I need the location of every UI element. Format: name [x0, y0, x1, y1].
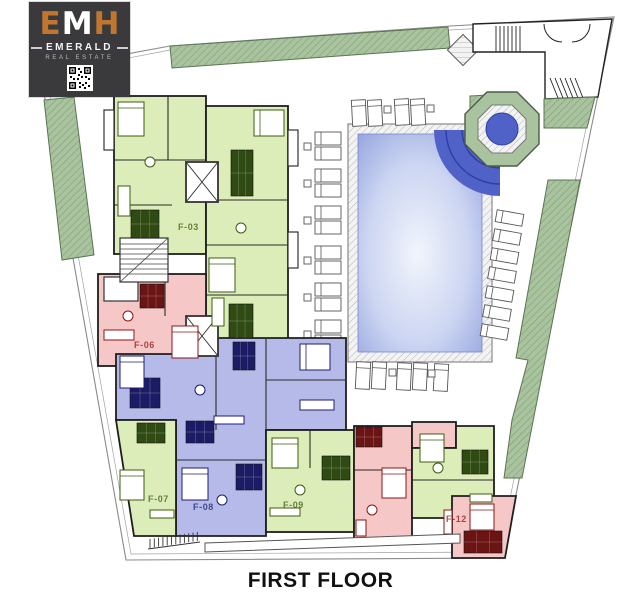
sun-lounger — [495, 210, 524, 227]
unit-label-f08: F-08 — [193, 502, 214, 512]
side-table — [384, 106, 391, 113]
side-table — [304, 180, 311, 187]
bed — [272, 438, 298, 468]
sofa — [212, 298, 224, 326]
sun-lounger — [315, 246, 341, 259]
rug — [137, 423, 165, 443]
floor-title: FIRST FLOOR — [0, 569, 641, 593]
unit-label-f07: F-07 — [148, 494, 169, 504]
staircase — [120, 238, 168, 282]
monogram-letter: M — [61, 6, 94, 42]
sun-lounger — [394, 99, 409, 126]
railing-base — [148, 542, 200, 549]
unit-label-f09: F-09 — [283, 500, 304, 510]
bed — [254, 110, 284, 136]
sun-lounger — [412, 363, 427, 391]
rug — [131, 210, 159, 238]
landscaping-left — [44, 97, 94, 260]
table — [195, 385, 205, 395]
bed — [172, 326, 198, 358]
rug — [464, 531, 502, 553]
sun-lounger — [355, 362, 370, 390]
table — [217, 495, 227, 505]
sun-lounger — [371, 362, 386, 390]
sun-lounger — [315, 283, 341, 296]
sun-lounger — [351, 100, 366, 127]
side-table — [427, 105, 434, 112]
unit-label-f06: F-06 — [134, 340, 155, 350]
side-table — [304, 143, 311, 150]
unit-label-f12: F-12 — [446, 514, 467, 524]
brand-subtitle: REAL ESTATE — [45, 55, 113, 61]
rug — [233, 342, 255, 370]
rug — [322, 456, 350, 480]
spa-bowl — [486, 113, 518, 145]
sun-lounger — [490, 248, 519, 265]
side-table — [304, 331, 311, 338]
sun-lounger — [315, 298, 341, 311]
brand-name: EMERALD — [46, 42, 113, 53]
rug — [462, 450, 488, 474]
sofa — [214, 416, 244, 424]
rug — [236, 464, 262, 490]
table — [145, 157, 155, 167]
sun-lounger — [367, 100, 382, 127]
sofa — [356, 520, 366, 536]
unit-label-f03: F-03 — [178, 222, 199, 232]
side-table — [304, 294, 311, 301]
bed — [420, 434, 444, 462]
divider — [117, 47, 128, 49]
sun-lounger — [315, 261, 341, 274]
landscaping-top — [170, 27, 450, 68]
rug — [231, 150, 253, 196]
sun-lounger — [315, 169, 341, 182]
rug — [229, 304, 253, 338]
swimming-pool — [348, 92, 539, 362]
sun-lounger — [315, 184, 341, 197]
sun-lounger — [410, 99, 425, 126]
bed — [470, 504, 494, 530]
brand-name-row: EMERALD — [31, 42, 128, 53]
sofa — [300, 400, 334, 410]
sofa — [150, 510, 174, 518]
table — [295, 485, 305, 495]
divider — [31, 47, 42, 49]
bed — [382, 468, 406, 498]
bed — [120, 470, 144, 500]
side-table — [428, 370, 435, 377]
entrance-stairs — [496, 26, 520, 52]
sun-lounger — [315, 132, 341, 145]
elevator-shaft-1 — [186, 162, 218, 202]
brand-logo: EMH EMERALD REAL ESTATE — [29, 2, 130, 97]
sun-lounger — [433, 364, 448, 392]
landscaping-patch — [544, 97, 595, 128]
rug — [186, 421, 214, 443]
table — [367, 505, 377, 515]
side-table — [304, 257, 311, 264]
sun-lounger — [493, 229, 522, 246]
bed — [118, 102, 144, 136]
sofa — [118, 186, 130, 216]
bed — [182, 468, 208, 500]
qr-code-icon — [67, 65, 93, 91]
rug — [140, 284, 164, 308]
bed — [300, 344, 330, 370]
monogram-letter: E — [40, 6, 61, 42]
side-table — [304, 217, 311, 224]
bed — [209, 258, 235, 292]
sun-lounger — [396, 363, 411, 391]
sofa — [470, 494, 492, 502]
side-table — [389, 369, 396, 376]
sun-lounger — [315, 206, 341, 219]
sun-lounger — [315, 320, 341, 333]
brand-monogram: EMH — [40, 9, 120, 39]
sofa — [104, 330, 134, 340]
floor-plan-page: EMH EMERALD REAL ESTATE F-03 F-06 F-07 F… — [0, 0, 641, 600]
sun-lounger — [315, 147, 341, 160]
table — [123, 311, 133, 321]
bed — [120, 356, 144, 388]
monogram-letter: H — [94, 6, 120, 42]
table — [433, 463, 443, 473]
rug — [356, 427, 382, 447]
table — [236, 223, 246, 233]
sun-lounger — [315, 221, 341, 234]
